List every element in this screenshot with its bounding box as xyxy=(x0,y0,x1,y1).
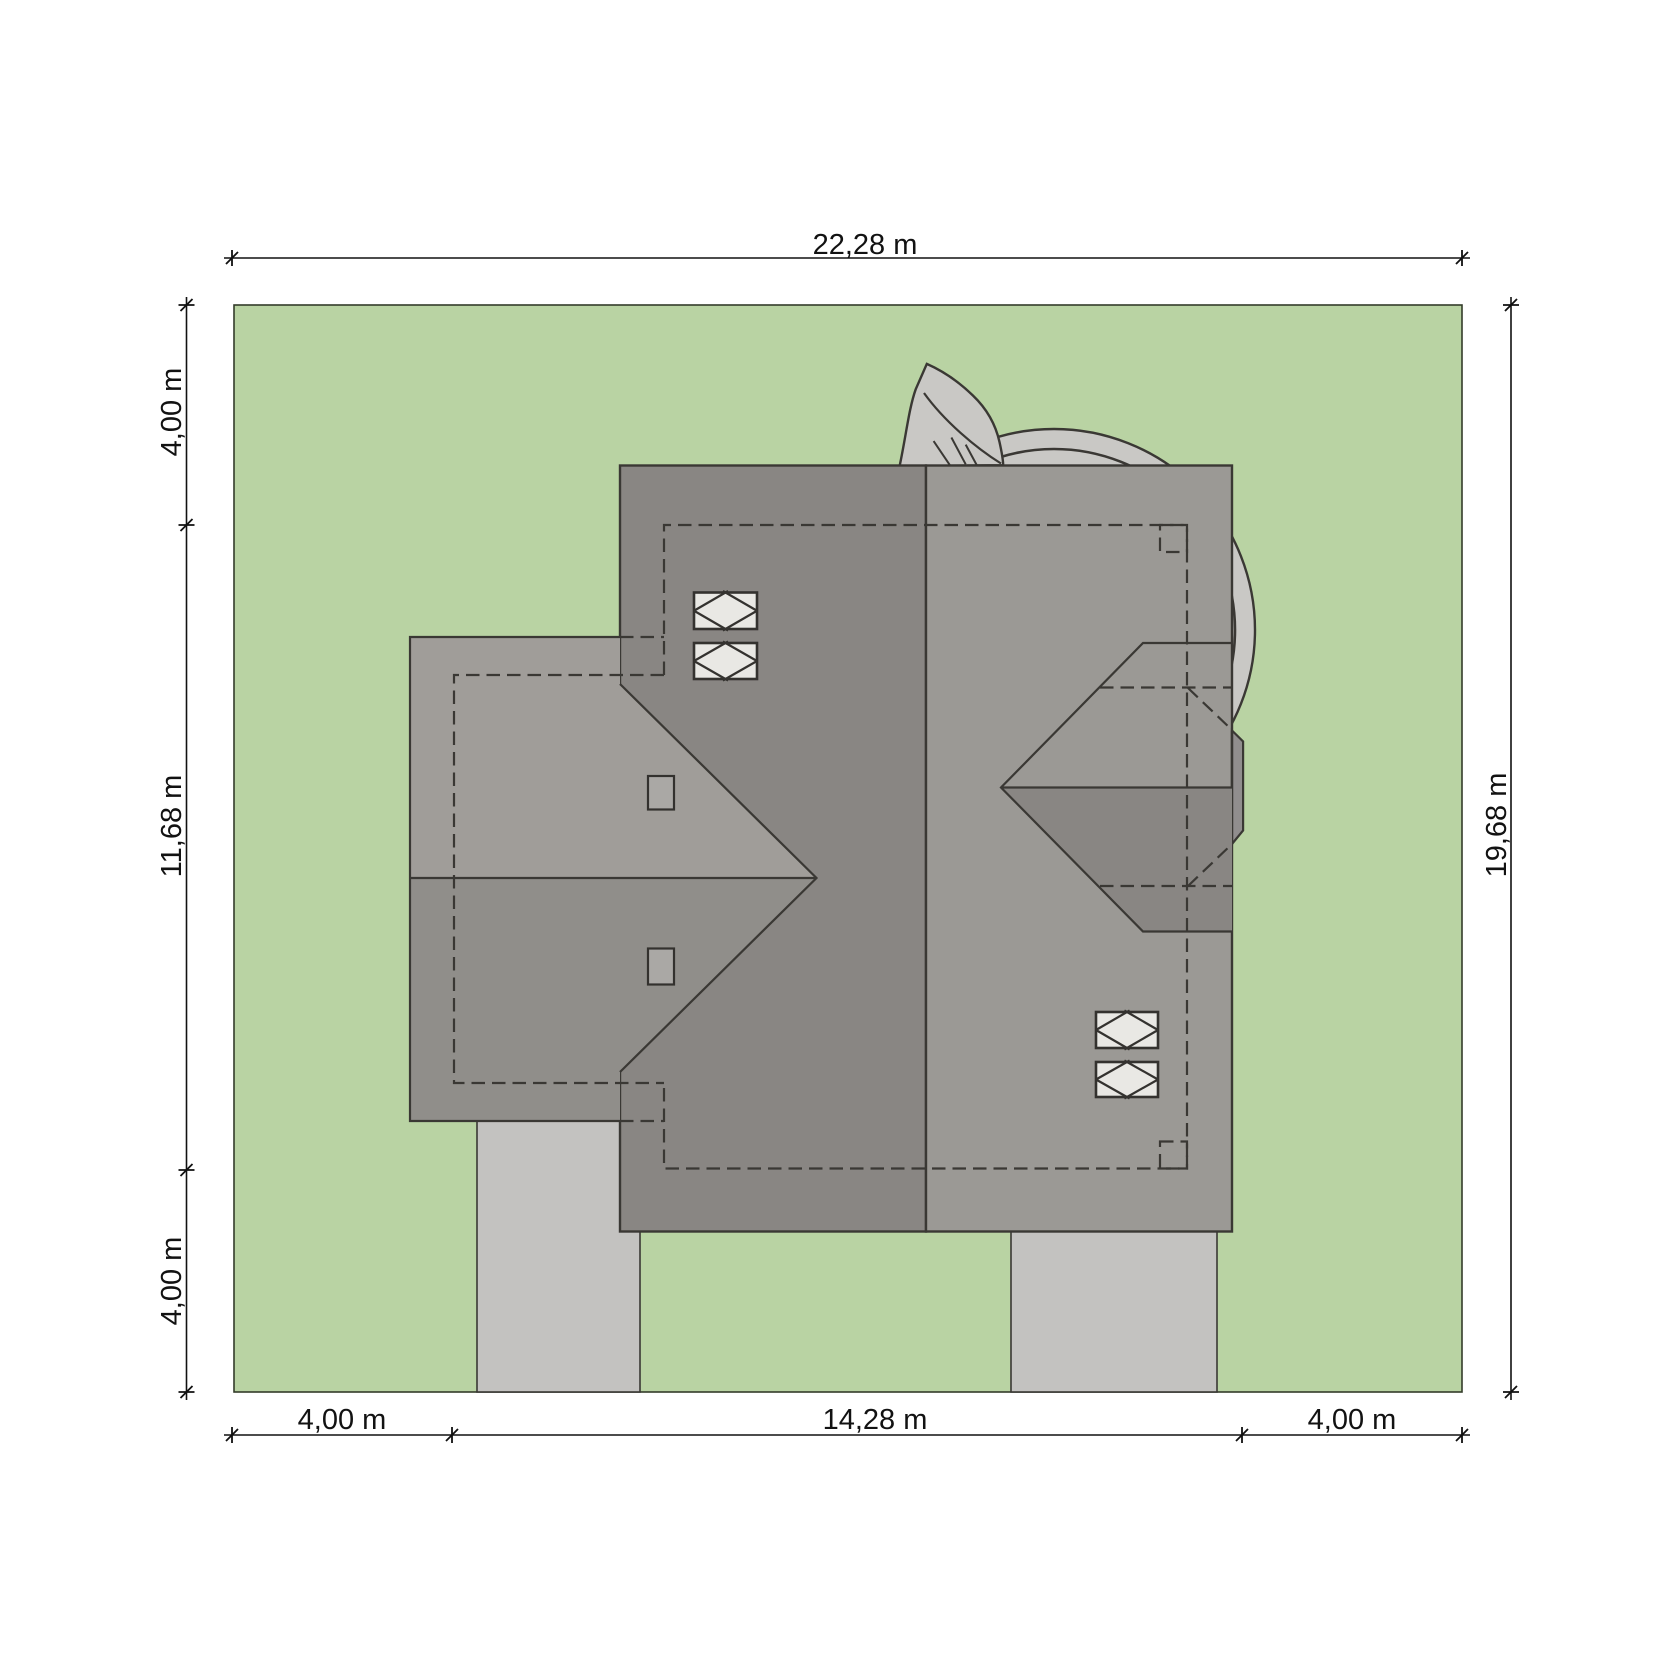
svg-text:4,00 m: 4,00 m xyxy=(298,1404,387,1436)
svg-text:4,00 m: 4,00 m xyxy=(156,1237,188,1326)
svg-text:4,00 m: 4,00 m xyxy=(1308,1404,1397,1436)
svg-text:4,00 m: 4,00 m xyxy=(156,368,188,457)
svg-text:11,68 m: 11,68 m xyxy=(156,775,188,878)
svg-text:19,68 m: 19,68 m xyxy=(1481,773,1513,878)
svg-text:14,28 m: 14,28 m xyxy=(823,1404,928,1436)
svg-text:22,28 m: 22,28 m xyxy=(813,229,918,261)
